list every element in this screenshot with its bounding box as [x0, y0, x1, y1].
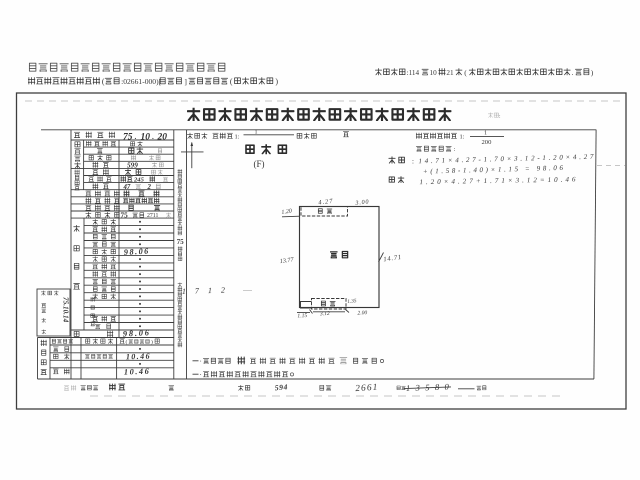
svg-text:245: 245	[133, 177, 145, 184]
svg-text:599: 599	[127, 161, 138, 169]
svg-text:1:: 1:	[460, 133, 465, 140]
svg-text:2661: 2661	[355, 382, 379, 394]
svg-text::: :	[412, 157, 414, 165]
svg-text::02661-000)[: :02661-000)[	[121, 77, 162, 86]
svg-text:75: 75	[121, 211, 129, 219]
svg-text:20: 20	[157, 132, 168, 142]
svg-text::114: :114	[407, 69, 420, 77]
svg-text:1712: 1712	[182, 285, 234, 296]
svg-text:2711: 2711	[147, 213, 158, 219]
svg-text:2: 2	[147, 184, 152, 191]
svg-text:): )	[275, 77, 278, 86]
svg-text:10.46: 10.46	[126, 352, 151, 362]
svg-text:(: (	[230, 77, 233, 86]
svg-text::: :	[454, 146, 456, 153]
svg-text:98.06: 98.06	[124, 247, 150, 257]
svg-text:1: 1	[484, 130, 487, 137]
svg-text:10: 10	[141, 132, 151, 142]
svg-text:1.20: 1.20	[281, 209, 292, 216]
svg-text:.: .	[135, 131, 137, 141]
svg-text:21: 21	[446, 69, 454, 77]
svg-text:·: ·	[200, 371, 202, 379]
svg-text:200: 200	[482, 139, 493, 146]
svg-text:]: ]	[184, 77, 187, 86]
svg-text:1.15: 1.15	[297, 313, 307, 320]
svg-text:47: 47	[123, 184, 131, 191]
svg-text:1.35: 1.35	[347, 298, 357, 305]
svg-text:10.46: 10.46	[124, 367, 151, 377]
svg-text:(F): (F)	[254, 159, 265, 169]
svg-text:10: 10	[430, 69, 438, 77]
svg-text:1:: 1:	[235, 133, 240, 140]
svg-text:98.06: 98.06	[123, 328, 151, 338]
svg-text:2.00: 2.00	[357, 310, 367, 317]
svg-text:.: .	[152, 131, 154, 141]
svg-text:75: 75	[177, 239, 184, 246]
svg-text:·: ·	[200, 358, 202, 366]
svg-text:): )	[151, 339, 153, 346]
svg-text:75: 75	[123, 132, 133, 142]
svg-text:.: .	[572, 69, 574, 77]
svg-text:75.10.14: 75.10.14	[62, 297, 70, 323]
svg-text:(: (	[102, 77, 105, 86]
svg-text:594: 594	[274, 382, 288, 392]
svg-text:(: (	[126, 339, 128, 346]
